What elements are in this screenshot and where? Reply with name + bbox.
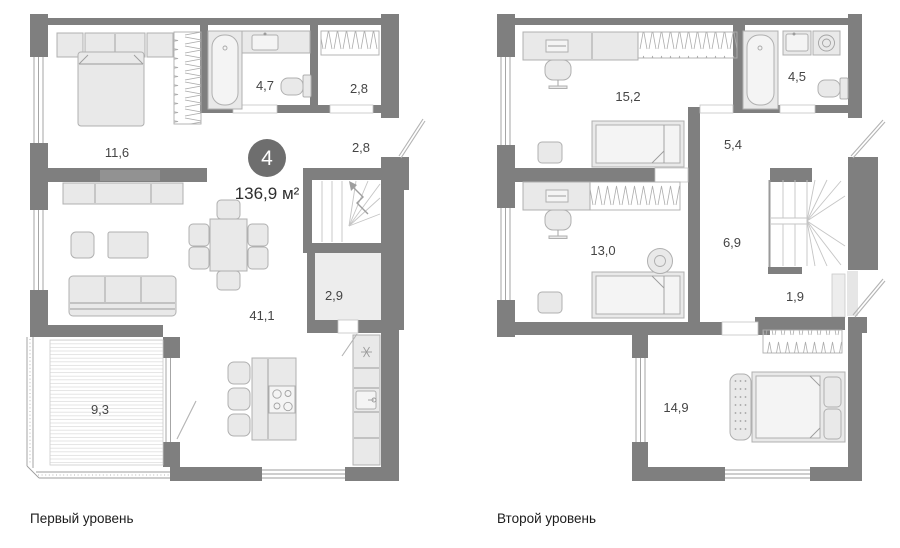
sink-icon xyxy=(783,31,811,55)
single-bed-icon xyxy=(592,121,684,167)
washing-machine-icon xyxy=(813,31,840,55)
office-chair-icon xyxy=(545,60,571,89)
coat-rack-icon xyxy=(321,31,379,55)
desk-icon xyxy=(523,32,638,60)
round-chair-icon xyxy=(648,249,673,274)
wardrobe-icon xyxy=(763,330,842,353)
bar-stool-icon xyxy=(228,414,250,436)
entry-door xyxy=(399,119,425,158)
wardrobe-icon xyxy=(590,182,680,210)
chair-icon xyxy=(189,247,209,269)
bathroom-door xyxy=(780,105,815,113)
room-area-bedroom-large: 15,2 xyxy=(615,89,640,104)
single-bed-icon xyxy=(592,272,684,318)
room-area-hall-top: 2,8 xyxy=(350,81,368,96)
chair-icon xyxy=(248,247,268,269)
room-area-closet: 1,9 xyxy=(786,289,804,304)
room-area-bedroom: 11,6 xyxy=(105,145,129,160)
coffee-table-icon xyxy=(71,232,94,258)
room-area-bedroom-master: 14,9 xyxy=(663,400,688,415)
closet-wardrobe xyxy=(832,274,845,317)
sofa-icon xyxy=(69,276,176,316)
sink-icon xyxy=(242,31,310,53)
rooms-count: 4 xyxy=(261,147,273,170)
bathtub-icon xyxy=(208,31,242,109)
cooktop-icon xyxy=(269,386,295,413)
window xyxy=(725,470,810,478)
wardrobe-icon xyxy=(174,32,201,124)
bedroom-large-door xyxy=(700,105,733,113)
terrace-door xyxy=(166,358,196,442)
bench-icon xyxy=(730,374,751,440)
double-bed-icon xyxy=(752,372,845,442)
room-area-living: 41,1 xyxy=(249,308,274,323)
side-door-panel xyxy=(847,271,858,316)
chair-icon xyxy=(248,224,268,246)
level-2-plan: 15,2 4,5 5,4 13,0 6,9 1,9 14,9 Второй ур… xyxy=(497,14,885,526)
room-area-bathroom: 4,7 xyxy=(256,78,274,93)
stairs-icon xyxy=(322,181,380,242)
bar-stool-icon xyxy=(228,388,250,410)
entry-door xyxy=(851,120,885,158)
level-1-plan: 11,6 4,7 2,8 2,8 41,1 2,9 9,3 4 136,9 м²… xyxy=(27,14,425,526)
hall-door xyxy=(330,105,373,113)
floor-plan-canvas: 11,6 4,7 2,8 2,8 41,1 2,9 9,3 4 136,9 м²… xyxy=(0,0,900,548)
bedroom-master-door xyxy=(722,322,758,335)
window xyxy=(501,208,510,300)
bedroom-middle-door xyxy=(655,168,688,182)
kitchen-sink-icon xyxy=(356,391,376,409)
rooms-badge: 4 136,9 м² xyxy=(235,139,300,203)
window xyxy=(262,470,345,478)
room-area-bathroom: 4,5 xyxy=(788,69,806,84)
storage-door xyxy=(338,320,358,333)
bar-stool-icon xyxy=(228,362,250,384)
desk-icon xyxy=(523,182,590,210)
room-area-terrace: 9,3 xyxy=(91,402,109,417)
wardrobe-icon xyxy=(638,32,737,58)
side-table-icon xyxy=(538,292,562,313)
chair-icon xyxy=(189,224,209,246)
window xyxy=(501,57,510,145)
window xyxy=(34,57,43,143)
room-area-storage: 2,9 xyxy=(325,288,343,303)
coffee-table-icon xyxy=(108,232,148,258)
room-area-hall: 5,4 xyxy=(724,137,742,152)
sideboard-icon xyxy=(63,183,183,204)
office-chair-icon xyxy=(545,210,571,239)
kitchen-cabinets-icon xyxy=(353,335,380,465)
window xyxy=(636,358,645,442)
room-area-bedroom-middle: 13,0 xyxy=(590,243,615,258)
room-area-hall-entry: 2,8 xyxy=(352,140,370,155)
level-2-caption: Второй уровень xyxy=(497,511,596,526)
kitchen-island-icon xyxy=(252,358,296,440)
stairs-icon xyxy=(770,180,846,267)
tv-icon xyxy=(100,170,160,181)
level-1-caption: Первый уровень xyxy=(30,511,134,526)
toilet-icon xyxy=(281,75,311,97)
bathtub-icon xyxy=(743,31,778,109)
storage-floor xyxy=(315,253,381,321)
chair-icon xyxy=(217,271,240,290)
total-area: 136,9 м² xyxy=(235,184,300,203)
double-bed-icon xyxy=(57,33,173,126)
room-area-corridor: 6,9 xyxy=(723,235,741,250)
side-table-icon xyxy=(538,142,562,163)
dining-table-icon xyxy=(189,200,268,290)
window xyxy=(34,210,43,290)
toilet-icon xyxy=(818,78,848,99)
